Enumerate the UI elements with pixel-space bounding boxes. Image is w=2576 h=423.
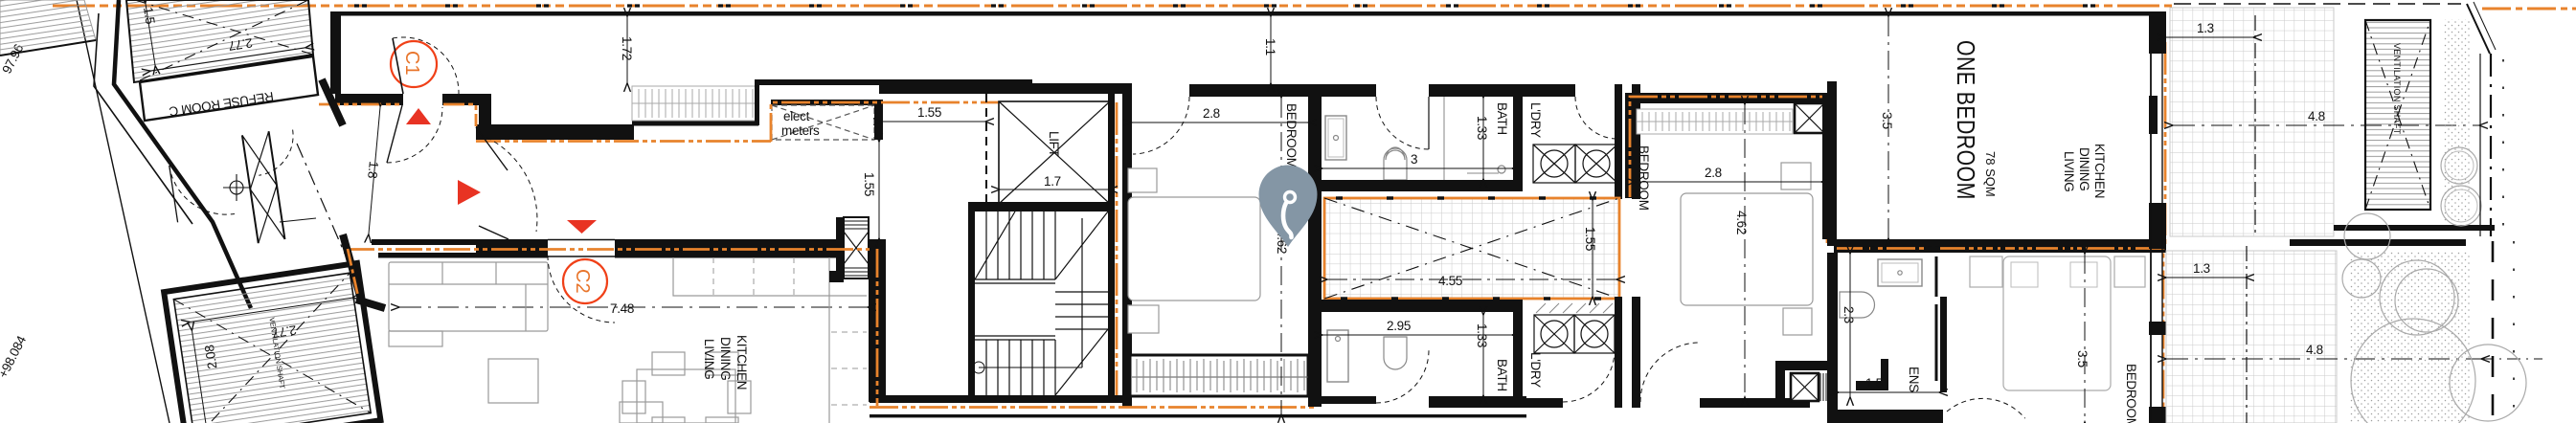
- svg-text:3: 3: [1411, 152, 1417, 167]
- svg-text:BEDROOM: BEDROOM: [1637, 145, 1651, 211]
- svg-text:7.48: 7.48: [610, 301, 634, 316]
- svg-text:2.8: 2.8: [1705, 166, 1722, 180]
- svg-text:1.5: 1.5: [1865, 376, 1883, 390]
- svg-text:C1: C1: [401, 51, 422, 76]
- svg-text:meters: meters: [781, 123, 820, 138]
- svg-text:DINING: DINING: [2077, 147, 2091, 190]
- svg-text:1.3: 1.3: [2193, 261, 2210, 276]
- svg-text:VENTILATION SHAFT: VENTILATION SHAFT: [2392, 43, 2402, 135]
- svg-text:4.55: 4.55: [1438, 274, 1462, 288]
- svg-text:LIVING: LIVING: [702, 339, 716, 379]
- svg-text:1.8: 1.8: [365, 161, 381, 179]
- svg-text:2.8: 2.8: [1203, 106, 1220, 121]
- svg-text:C2: C2: [572, 269, 593, 294]
- svg-text:2.3: 2.3: [1842, 306, 1856, 323]
- svg-text:L'DRY: L'DRY: [1528, 352, 1543, 388]
- svg-text:BATH: BATH: [1495, 359, 1509, 391]
- svg-text:1.33: 1.33: [1475, 116, 1489, 140]
- svg-text:4.62: 4.62: [1734, 211, 1749, 234]
- svg-text:KITCHEN: KITCHEN: [2092, 144, 2107, 198]
- svg-text:elect: elect: [783, 109, 810, 123]
- svg-text:1.3: 1.3: [2197, 21, 2214, 35]
- svg-text:L'DRY: L'DRY: [1528, 102, 1543, 138]
- svg-text:ONE BEDROOM: ONE BEDROOM: [1951, 40, 1979, 200]
- svg-text:2.95: 2.95: [1387, 319, 1411, 333]
- svg-text:78 SQM: 78 SQM: [1983, 151, 1998, 197]
- svg-text:1.5: 1.5: [141, 6, 157, 25]
- svg-text:LIVING: LIVING: [2062, 151, 2076, 191]
- svg-text:BEDROOM: BEDROOM: [1284, 103, 1299, 168]
- svg-text:1.55: 1.55: [862, 172, 876, 196]
- svg-text:1.72: 1.72: [620, 36, 634, 60]
- svg-text:1.7: 1.7: [1044, 174, 1061, 189]
- svg-text:DINING: DINING: [718, 337, 733, 380]
- svg-text:3.5: 3.5: [1880, 112, 1894, 129]
- svg-text:ENS: ENS: [1907, 367, 1921, 392]
- svg-text:1.33: 1.33: [1475, 323, 1489, 347]
- svg-text:KITCHEN: KITCHEN: [734, 335, 749, 390]
- svg-text:4.8: 4.8: [2306, 343, 2323, 357]
- svg-text:3.5: 3.5: [2075, 350, 2090, 367]
- svg-text:4.8: 4.8: [2308, 109, 2325, 123]
- svg-text:BEDROOM: BEDROOM: [2124, 364, 2138, 423]
- svg-text:1.55: 1.55: [917, 105, 941, 120]
- svg-text:1.55: 1.55: [1583, 227, 1597, 251]
- svg-text:1.1: 1.1: [1263, 38, 1277, 56]
- svg-text:BATH: BATH: [1495, 102, 1509, 135]
- svg-text:LIFT: LIFT: [1047, 131, 1061, 157]
